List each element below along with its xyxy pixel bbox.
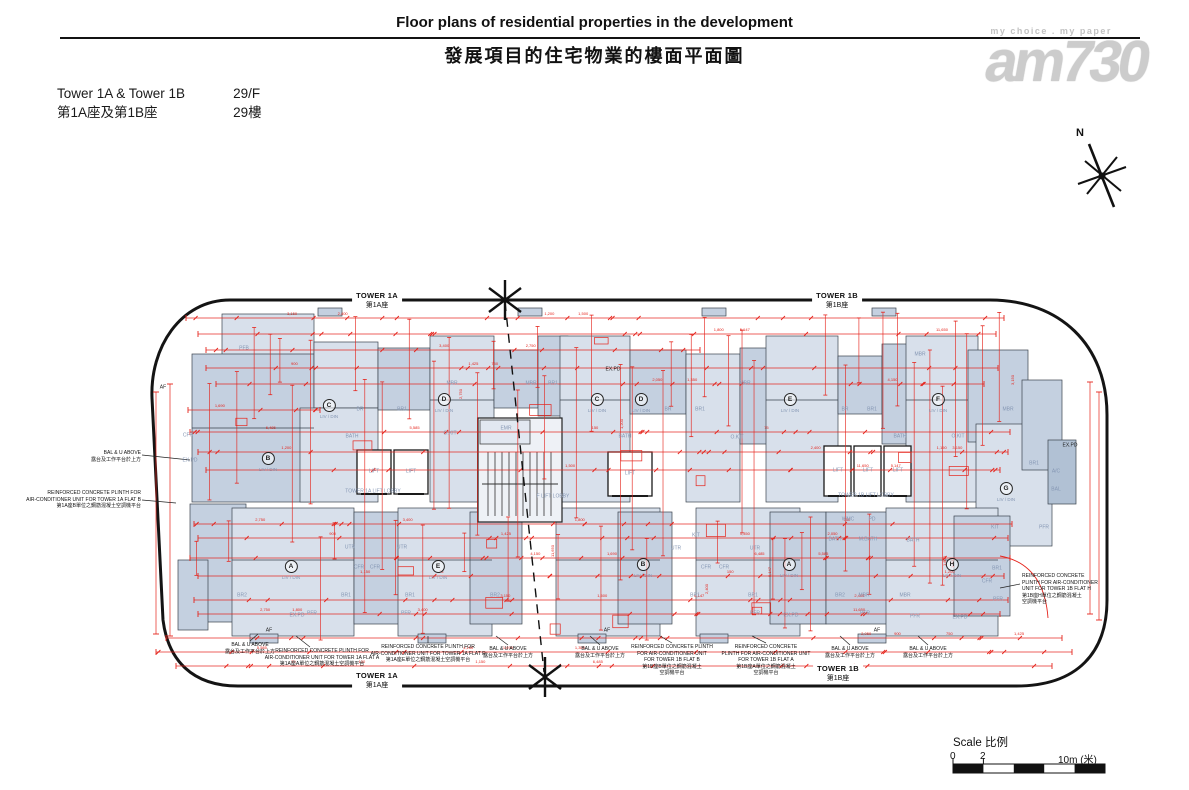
unit-letter-badge: H <box>945 558 958 571</box>
unit-label: E LIV / DIN <box>429 560 447 580</box>
room-label: UTR <box>750 547 760 552</box>
unit-label: G LIV / DIN <box>997 482 1015 502</box>
dimension-value: 900 <box>329 532 336 536</box>
dimension-value: 5,585 <box>410 426 420 430</box>
room-label: UTR <box>671 547 681 552</box>
room-label: EX.PD <box>952 616 967 621</box>
room-label: PFR <box>910 615 920 620</box>
north-arrow <box>1078 144 1126 207</box>
room-label: CFR <box>370 566 380 571</box>
dimension-value: 2,750 <box>526 344 536 348</box>
callout: REINFORCED CONCRETE PLINTH FORAIR-CONDIT… <box>265 648 380 668</box>
dimension-value: 4,150 <box>888 378 898 382</box>
tower-marker: TOWER 1B 第1B座 <box>813 664 863 684</box>
scale-tick-0: 0 <box>950 751 956 762</box>
callout: REINFORCED CONCRETE PLINTH FORAIR-CONDIT… <box>26 490 141 510</box>
tower-marker-zh: 第1B座 <box>816 301 858 311</box>
room-label: A/C <box>1052 470 1060 475</box>
callout: BAL & U ABOVE露台及工作平台於上方 <box>91 450 141 463</box>
dimension-value: 1,200 <box>544 312 554 316</box>
dimension-value: 2,050 <box>652 378 662 382</box>
room-label: PD <box>869 518 876 523</box>
room-label: BR1 <box>695 408 705 413</box>
room-label: MBR <box>858 594 869 599</box>
dimension-value: 750 <box>946 632 953 636</box>
room-label: CFR <box>354 566 364 571</box>
room-label: O.KIT <box>730 436 743 441</box>
dimension-value: 3,150 <box>952 446 962 450</box>
dimension-value: 6,485 <box>755 552 765 556</box>
room-label: BR2 <box>835 594 845 599</box>
dimension-value: 4,150 <box>530 552 540 556</box>
room-label: CFR <box>183 434 193 439</box>
unit-livdin-label: LIV / DIN <box>588 408 606 413</box>
unit-letter-badge: A <box>284 560 297 573</box>
lift-label: LIFT <box>833 469 843 474</box>
dimension-value: 150 <box>592 426 599 430</box>
room-label: BAL <box>1051 488 1060 493</box>
room-label: PFR <box>1039 526 1049 531</box>
unit-label: A LIV / DIN <box>282 560 300 580</box>
tower-marker-en: TOWER 1B <box>816 291 858 301</box>
room-label: PFR <box>993 598 1003 603</box>
unit-livdin-label: LIV / DIN <box>943 573 961 578</box>
dimension-value: 1,690 <box>215 404 225 408</box>
dimension-value: 2,050 <box>828 532 838 536</box>
dimension-value: 75 <box>764 426 768 430</box>
unit-letter-badge: C <box>590 393 603 406</box>
dimension-value: 3,400 <box>439 344 449 348</box>
dimension-value: 150 <box>727 570 734 574</box>
room-label: BR1 <box>548 382 558 387</box>
scale-tick-2: 2 <box>980 751 986 762</box>
unit-label: E LIV / DIN <box>781 393 799 413</box>
unit-livdin-label: LIV / DIN <box>929 408 947 413</box>
room-label: BR2 <box>237 594 247 599</box>
dimension-value: 1,800 <box>714 328 724 332</box>
tower-marker: TOWER 1B 第1B座 <box>812 291 862 311</box>
plan-annotation-label: AF <box>160 386 166 391</box>
dimension-value: 3,400 <box>403 518 413 522</box>
room-label: EMR <box>500 427 511 432</box>
plan-annotation-label: EX.PD <box>1062 444 1077 449</box>
room-label: BR1 <box>748 594 758 599</box>
unit-letter-badge: D <box>634 393 647 406</box>
plan-annotation-label: AF <box>874 629 880 634</box>
room-label: EX.PD <box>783 614 798 619</box>
lift-label: LIFT <box>625 472 635 477</box>
unit-livdin-label: LIV / DIN <box>781 408 799 413</box>
dimension-value: 11,650 <box>551 545 555 557</box>
room-label: WMC <box>842 518 855 523</box>
room-label: PFR <box>860 612 870 617</box>
dimension-value: 1,500 <box>578 312 588 316</box>
unit-label: C LIV / DIN <box>320 399 338 419</box>
unit-livdin-label: LIV / DIN <box>259 467 277 472</box>
lift-lobby-label: F LIFT LOBBY <box>537 495 570 500</box>
dimension-value: 5,147 <box>768 567 772 577</box>
room-label: BR1 <box>690 594 700 599</box>
room-label: PFR <box>307 612 317 617</box>
unit-letter-badge: B <box>636 558 649 571</box>
room-label: PFR <box>401 612 411 617</box>
unit-livdin-label: LIV / DIN <box>282 575 300 580</box>
unit-label: F LIV / DIN <box>929 393 947 413</box>
dimension-value: 1,150 <box>937 446 947 450</box>
dimension-value: 1,425 <box>1014 632 1024 636</box>
dimension-value: 1,350 <box>687 378 697 382</box>
unit-label: H LIV / DIN <box>943 558 961 578</box>
scale-tick-10m: 10m (米) <box>1058 751 1097 766</box>
tower-marker-zh: 第1A座 <box>356 681 398 691</box>
unit-livdin-label: LIV / DIN <box>634 573 652 578</box>
unit-label: B LIV / DIN <box>259 452 277 472</box>
unit-letter-badge: D <box>437 393 450 406</box>
callout: BAL & U ABOVE露台及工作平台於上方 <box>825 646 875 659</box>
room-label: MBR <box>446 382 457 387</box>
dimension-value: 2,400 <box>811 446 821 450</box>
dimension-value: 1,150 <box>360 570 370 574</box>
lift-label: LIFT <box>893 469 903 474</box>
plan-annotation-label: EX.PD <box>605 368 620 373</box>
dimension-value: 1,200 <box>281 446 291 450</box>
dimension-value: 1,425 <box>501 532 511 536</box>
dimension-value: 1,500 <box>565 464 575 468</box>
dimension-value: 900 <box>894 632 901 636</box>
lift-label: LIFT <box>369 470 379 475</box>
tower-marker-en: TOWER 1A <box>356 671 398 681</box>
room-label: BATH <box>907 539 920 544</box>
room-label: BR1 <box>867 408 877 413</box>
dimension-value: 1,800 <box>292 608 302 612</box>
dimension-value: 2,750 <box>255 518 265 522</box>
unit-label: D LIV / DIN <box>435 393 453 413</box>
unit-livdin-label: LIV / DIN <box>632 408 650 413</box>
unit-livdin-label: LIV / DIN <box>780 573 798 578</box>
room-label: BATH <box>894 435 907 440</box>
unit-label: A LIV / DIN <box>780 558 798 578</box>
room-label: M.BATH <box>859 538 878 543</box>
room-label: BR2 <box>490 594 500 599</box>
dimension-value: 11,650 <box>936 328 948 332</box>
dimension-value: 6,485 <box>593 660 603 664</box>
unit-label: D LIV / DIN <box>632 393 650 413</box>
plan-annotation-label: AF <box>266 629 272 634</box>
dimension-value: 3,400 <box>418 608 428 612</box>
room-label: PFB <box>239 347 249 352</box>
tower-marker-zh: 第1A座 <box>356 301 398 311</box>
unit-livdin-label: LIV / DIN <box>435 408 453 413</box>
room-label: BR1 <box>1029 462 1039 467</box>
room-label: BR1 <box>992 567 1002 572</box>
room-label: BATH <box>346 435 359 440</box>
dimension-value: 1,500 <box>597 594 607 598</box>
tower-marker-en: TOWER 1B <box>817 664 859 674</box>
room-label: MBR <box>914 353 925 358</box>
dimension-value: 750 <box>491 362 498 366</box>
callout: BAL & U ABOVE露台及工作平台於上方 <box>903 646 953 659</box>
room-label: EX.PD <box>289 614 304 619</box>
room-label: MBR <box>899 594 910 599</box>
unit-letter-badge: B <box>261 452 274 465</box>
room-label: O.KIT <box>951 435 964 440</box>
plan-annotation-label: AF <box>604 629 610 634</box>
dimension-value: 6,485 <box>266 426 276 430</box>
room-label: BR <box>842 408 849 413</box>
room-label: BR1 <box>341 594 351 599</box>
room-label: PFR <box>750 612 760 617</box>
room-label: BR <box>357 408 364 413</box>
dimension-value: 5,147 <box>740 328 750 332</box>
room-label: CFR <box>719 566 729 571</box>
dimension-value: 900 <box>291 362 298 366</box>
room-label: KIT <box>991 526 999 531</box>
dimension-value: 1,800 <box>575 518 585 522</box>
scale-bar-title: Scale 比例 <box>953 734 1008 750</box>
callout: REINFORCED CONCRETE PLINTHFOR AIR-CONDIT… <box>631 644 713 677</box>
callout: BAL & U ABOVE露台及工作平台於上方 <box>575 646 625 659</box>
room-label: BR1 <box>405 594 415 599</box>
dimension-value: 5,585 <box>818 552 828 556</box>
unit-livdin-label: LIV / DIN <box>320 414 338 419</box>
dimension-value: 2,750 <box>260 608 270 612</box>
dimension-value: 2,400 <box>705 584 709 594</box>
dimension-value: 2,750 <box>459 389 463 399</box>
room-label: BR <box>665 408 672 413</box>
room-label: UTR <box>397 546 407 551</box>
lift-label: LIFT <box>406 470 416 475</box>
dimension-value: 3,150 <box>500 594 510 598</box>
tower-marker: TOWER 1A 第1A座 <box>352 671 402 691</box>
room-label: BATH <box>619 435 632 440</box>
room-label: UTR <box>345 546 355 551</box>
dimension-value: 1,200 <box>620 419 624 429</box>
callout: BAL & U ABOVE露台及工作平台於上方 <box>483 646 533 659</box>
unit-letter-badge: E <box>431 560 444 573</box>
room-label: BR1 <box>397 408 407 413</box>
tower-marker-zh: 第1B座 <box>817 674 859 684</box>
unit-letter-badge: G <box>999 482 1012 495</box>
floor-plan-page: Floor plans of residential properties in… <box>0 0 1189 790</box>
dimension-value: 1,350 <box>740 532 750 536</box>
unit-letter-badge: C <box>322 399 335 412</box>
tower-marker: TOWER 1A 第1A座 <box>352 291 402 311</box>
dimension-value: 3,150 <box>1011 375 1015 385</box>
callout: REINFORCED CONCRETEPLINTH FOR AIR-CONDIT… <box>722 644 811 677</box>
dimension-value: 1,425 <box>468 362 478 366</box>
callout: REINFORCED CONCRETE PLINTH FORAIR-CONDIT… <box>371 644 486 664</box>
room-label: MBR <box>1002 408 1013 413</box>
room-label: BATH <box>829 538 842 543</box>
room-label: KIT <box>692 534 700 539</box>
dimension-value: 3,150 <box>287 312 297 316</box>
tower-marker-en: TOWER 1A <box>356 291 398 301</box>
room-label: O.KIT <box>443 432 456 437</box>
dimension-value: 2,400 <box>338 312 348 316</box>
dimension-value: 1,690 <box>607 552 617 556</box>
unit-label: C LIV / DIN <box>588 393 606 413</box>
room-label: MBR <box>739 382 750 387</box>
unit-letter-badge: E <box>783 393 796 406</box>
lift-label: LIFT <box>863 469 873 474</box>
unit-label: B LIV / DIN <box>634 558 652 578</box>
room-label: CFR <box>701 566 711 571</box>
lift-lobby-label: TOWER 1A LIFT LOBBY <box>345 490 400 495</box>
room-label: CFR <box>982 580 992 585</box>
dimension-value: 2,050 <box>861 632 871 636</box>
unit-letter-badge: A <box>782 558 795 571</box>
room-label: EX.PD <box>182 459 197 464</box>
callout: REINFORCED CONCRETEPLINTH FOR AIR-CONDIT… <box>1022 573 1098 606</box>
lift-lobby-label: TOWER 1B LIFT LOBBY <box>838 494 894 499</box>
unit-livdin-label: LIV / DIN <box>997 497 1015 502</box>
unit-livdin-label: LIV / DIN <box>429 575 447 580</box>
room-label: MBR <box>525 382 536 387</box>
unit-letter-badge: F <box>931 393 944 406</box>
